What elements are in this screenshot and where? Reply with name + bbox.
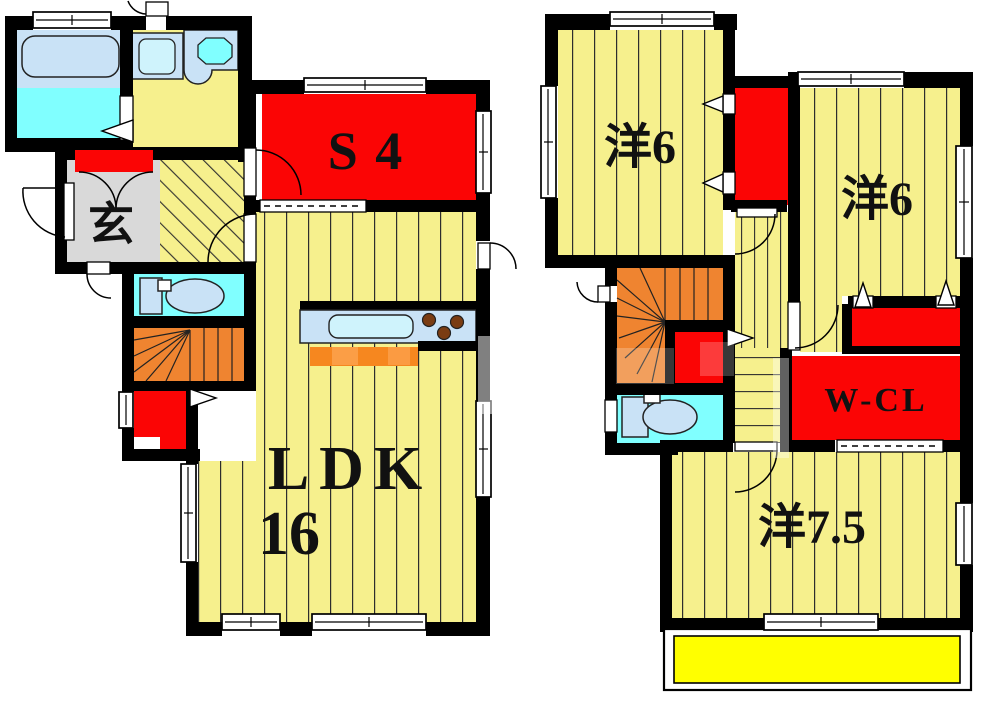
hall2f-door-leaf	[737, 208, 777, 217]
window	[476, 111, 491, 193]
window	[181, 464, 196, 562]
stairwell-door-leaf	[598, 286, 610, 302]
s4-door-opening	[244, 148, 256, 196]
toilet-1f-flush	[158, 280, 171, 291]
floor-plan-page: 玄 S 4 LDK 16 洋6 洋6 W-CL 洋7.5	[0, 0, 983, 705]
window	[541, 86, 556, 198]
room-label-entrance: 玄	[88, 199, 134, 250]
bedroom-right-nook	[800, 296, 842, 352]
hall-2f-upper	[735, 212, 788, 348]
stairs-1f	[134, 328, 244, 381]
window	[119, 392, 133, 428]
window	[476, 401, 491, 497]
washer-pan-inner	[139, 39, 175, 74]
window	[798, 72, 904, 86]
entrance-door-leaf	[64, 183, 74, 240]
kitchen-sink	[329, 315, 413, 338]
window	[222, 614, 280, 630]
bathtub	[22, 36, 119, 77]
shoe-cabinet	[75, 150, 153, 172]
hall-1f	[160, 160, 244, 262]
window	[312, 614, 426, 630]
stove-burner	[451, 316, 464, 329]
bedroom-large-door-leaf	[735, 442, 777, 451]
room-label-bedroom-right: 洋6	[841, 173, 913, 226]
washroom-ext-door-leaf	[146, 2, 168, 16]
balcony	[664, 629, 971, 690]
room-label-ldk: LDK	[268, 435, 432, 503]
bedroom-right-door-opening	[788, 302, 800, 350]
room-label-wcl: W-CL	[824, 382, 927, 419]
entrance-south-opening	[87, 262, 110, 274]
toilet-1f-bowl	[166, 279, 224, 313]
vanity-basin	[198, 38, 232, 64]
stove-burner	[438, 327, 451, 340]
room-label-bedroom-large: 洋7.5	[758, 501, 866, 554]
kitchen-counter-end	[418, 341, 476, 351]
window	[956, 503, 972, 565]
closet-bedroom-left	[735, 88, 788, 205]
closet-bedroom-right	[852, 308, 960, 346]
room-label-ldk-size: 16	[258, 500, 320, 568]
stove-burner	[423, 314, 436, 327]
closet-under-stairs	[134, 391, 187, 437]
closet-under-stairs-step	[160, 437, 187, 450]
kitchen-counter-back	[300, 301, 476, 310]
window	[764, 614, 878, 630]
toilet-2f-bowl	[643, 400, 697, 434]
floor-plan-drawing: 玄 S 4 LDK 16 洋6 洋6 W-CL 洋7.5	[0, 0, 983, 705]
kitchen-ext-door-leaf	[478, 243, 490, 269]
room-label-s4: S 4	[328, 121, 405, 181]
window	[956, 146, 972, 258]
ldk-door-opening	[244, 214, 256, 262]
window	[610, 12, 714, 26]
toilet-2f-door-opening	[605, 400, 617, 432]
window	[304, 78, 426, 92]
window	[33, 12, 111, 28]
room-label-bedroom-left: 洋6	[604, 121, 676, 174]
